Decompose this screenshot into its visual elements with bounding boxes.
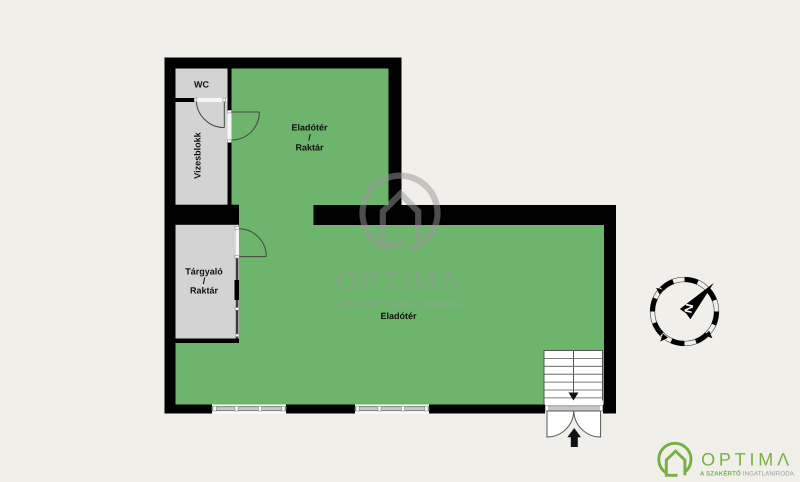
svg-text:Eladótér: Eladótér (380, 311, 417, 321)
svg-text:Vizesblokk: Vizesblokk (193, 131, 203, 178)
svg-text:Raktár: Raktár (190, 286, 219, 296)
svg-text:Raktár: Raktár (295, 143, 324, 153)
svg-text:A SZAKÉRTŐ INGATLANIRODA: A SZAKÉRTŐ INGATLANIRODA (700, 470, 795, 478)
svg-text:OPTIMΛ: OPTIMΛ (701, 450, 793, 470)
svg-text:WC: WC (194, 80, 209, 90)
svg-text:A SZAKÉRTŐ INGATLANIRODA: A SZAKÉRTŐ INGATLANIRODA (335, 300, 463, 310)
svg-text:Eladótér: Eladótér (291, 123, 328, 133)
svg-text:OPTIMΛ: OPTIMΛ (336, 265, 461, 296)
svg-text:Tárgyaló: Tárgyaló (185, 267, 223, 277)
